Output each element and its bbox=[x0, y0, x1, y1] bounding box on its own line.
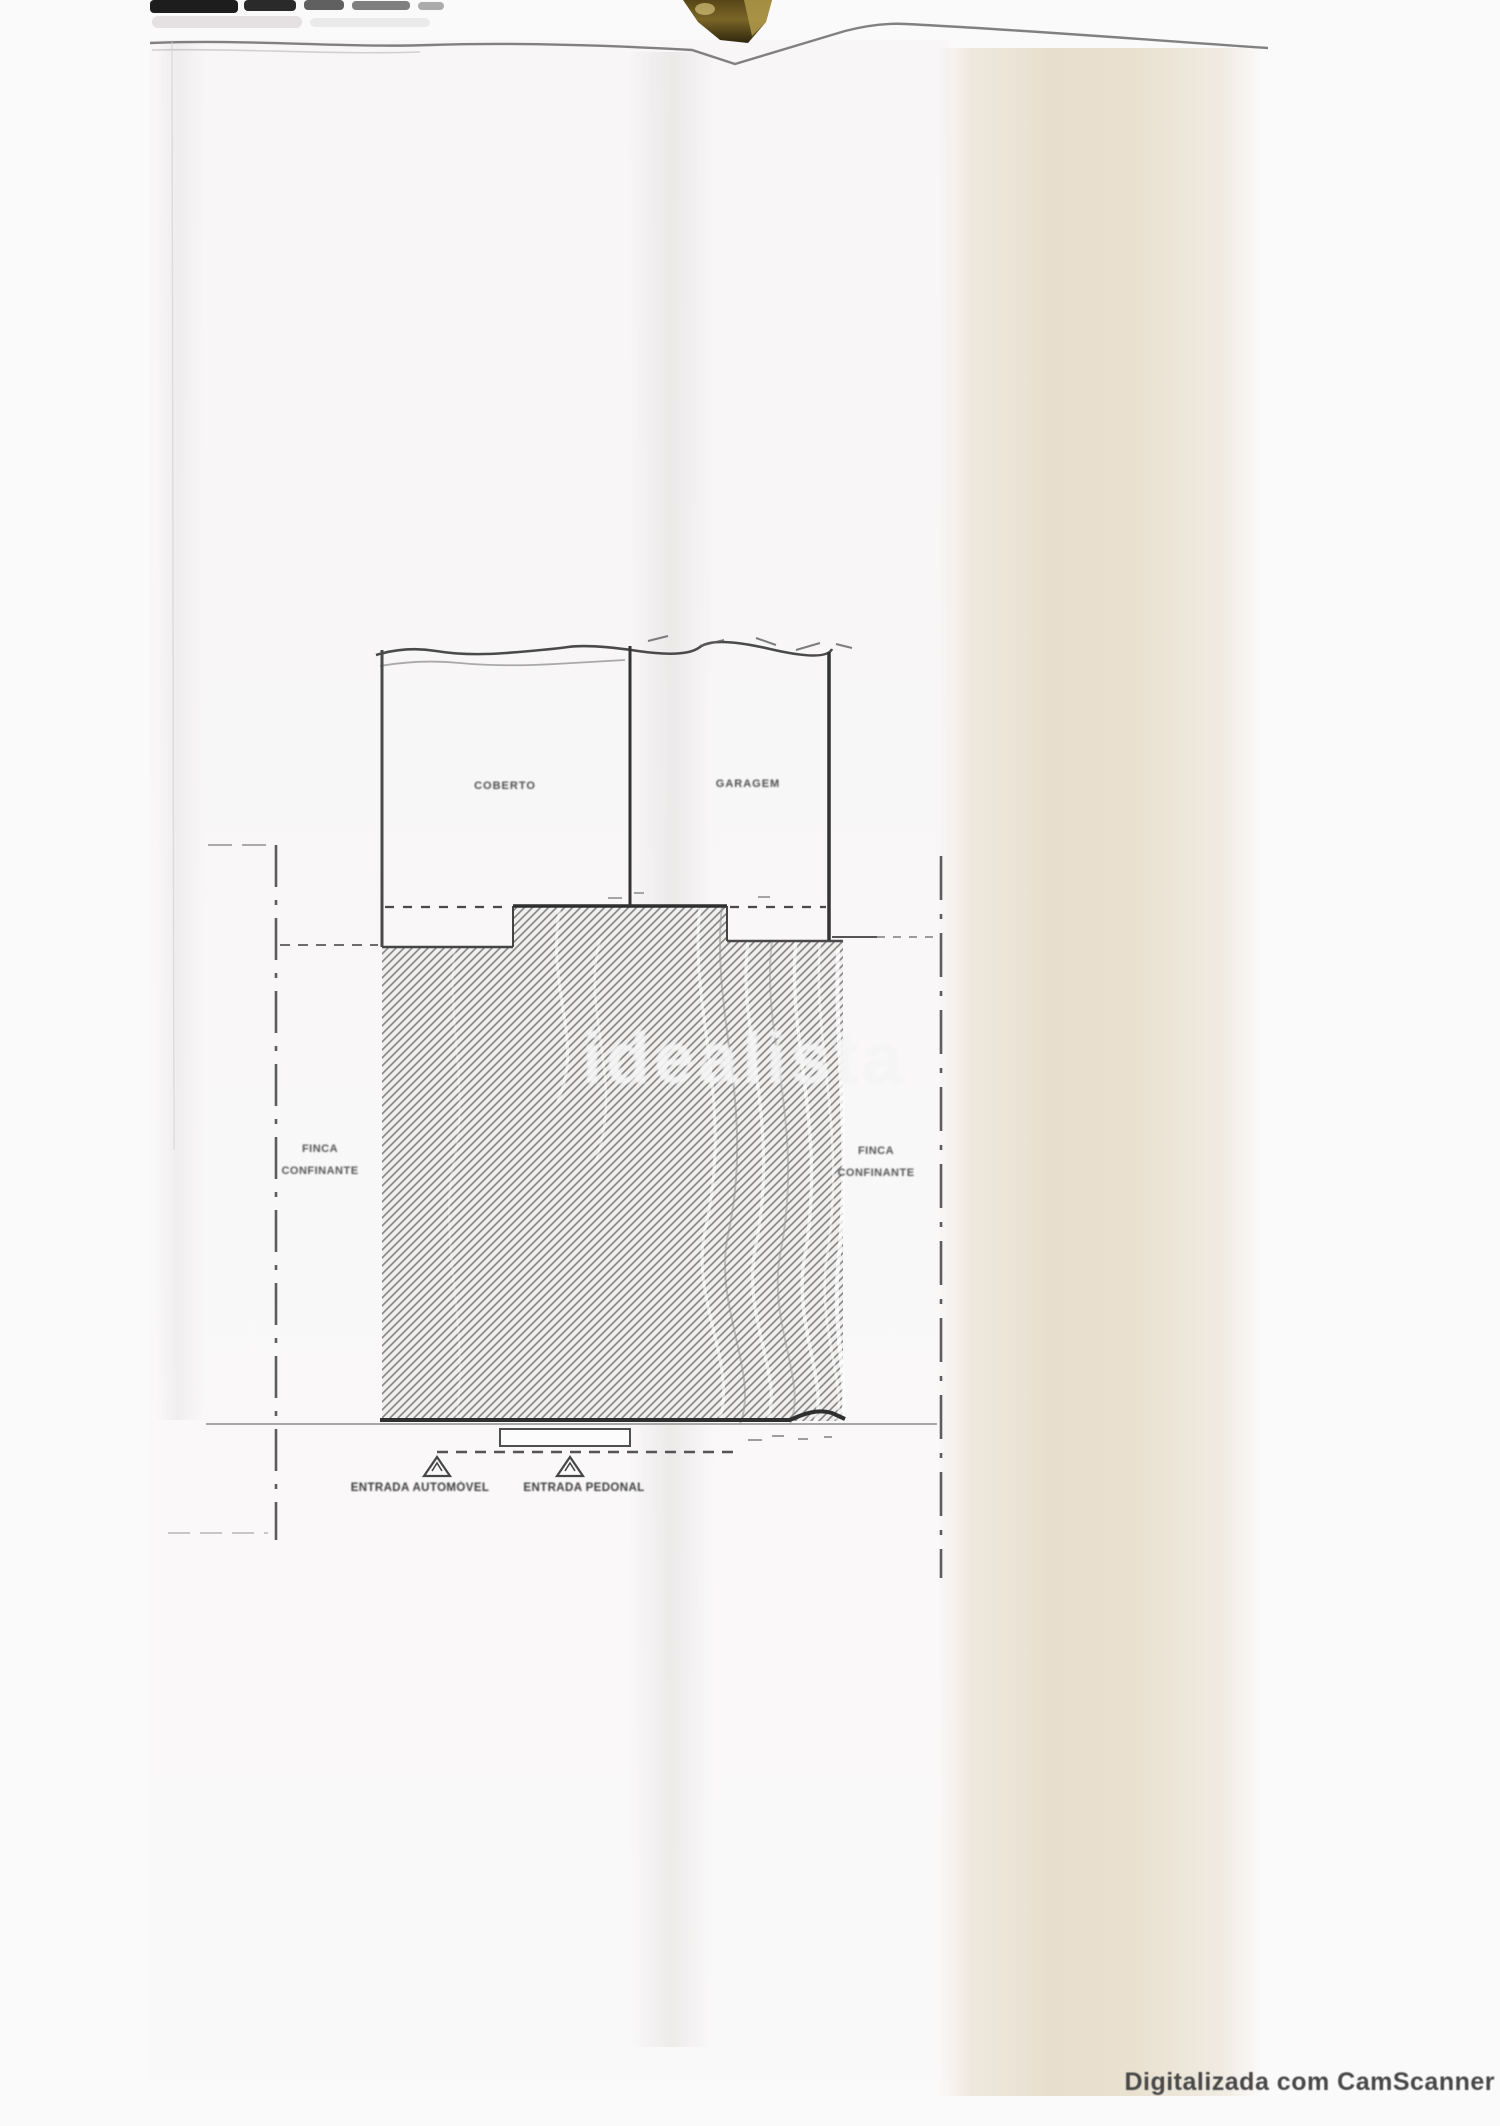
hatched-plot-area bbox=[380, 906, 845, 1424]
right-boundary-label: FINCA CONFINANTE bbox=[837, 1140, 914, 1184]
right-boundary-label-line1: FINCA bbox=[837, 1140, 914, 1162]
gold-clip-object bbox=[683, 0, 772, 43]
pedestrian-entrance-marker triangle-icon bbox=[557, 1457, 583, 1476]
pedestrian-entrance-label: ENTRADA PEDONAL bbox=[523, 1482, 644, 1494]
vehicle-entrance-label: ENTRADA AUTOMÓVEL bbox=[351, 1482, 490, 1494]
scanned-floor-plan-page: COBERTO GARAGEM FINCA CONFINANTE FINCA C… bbox=[0, 0, 1500, 2126]
idealista-watermark: idealista bbox=[582, 1018, 906, 1100]
right-boundary-label-line2: CONFINANTE bbox=[837, 1162, 914, 1184]
left-boundary-label-line2: CONFINANTE bbox=[281, 1160, 358, 1182]
left-boundary-label-line1: FINCA bbox=[281, 1138, 358, 1160]
vehicle-entrance-marker triangle-icon bbox=[424, 1457, 450, 1476]
room-label-right: GARAGEM bbox=[716, 778, 780, 790]
left-boundary-label: FINCA CONFINANTE bbox=[281, 1138, 358, 1182]
cutoff-text-smudge bbox=[150, 0, 444, 28]
gate-opening bbox=[500, 1429, 630, 1446]
camscanner-note: Digitalizada com CamScanner bbox=[1124, 2068, 1495, 2097]
room-label-left: COBERTO bbox=[474, 780, 536, 792]
bottom-street-elements bbox=[206, 1424, 937, 1476]
building-outline bbox=[376, 636, 852, 947]
